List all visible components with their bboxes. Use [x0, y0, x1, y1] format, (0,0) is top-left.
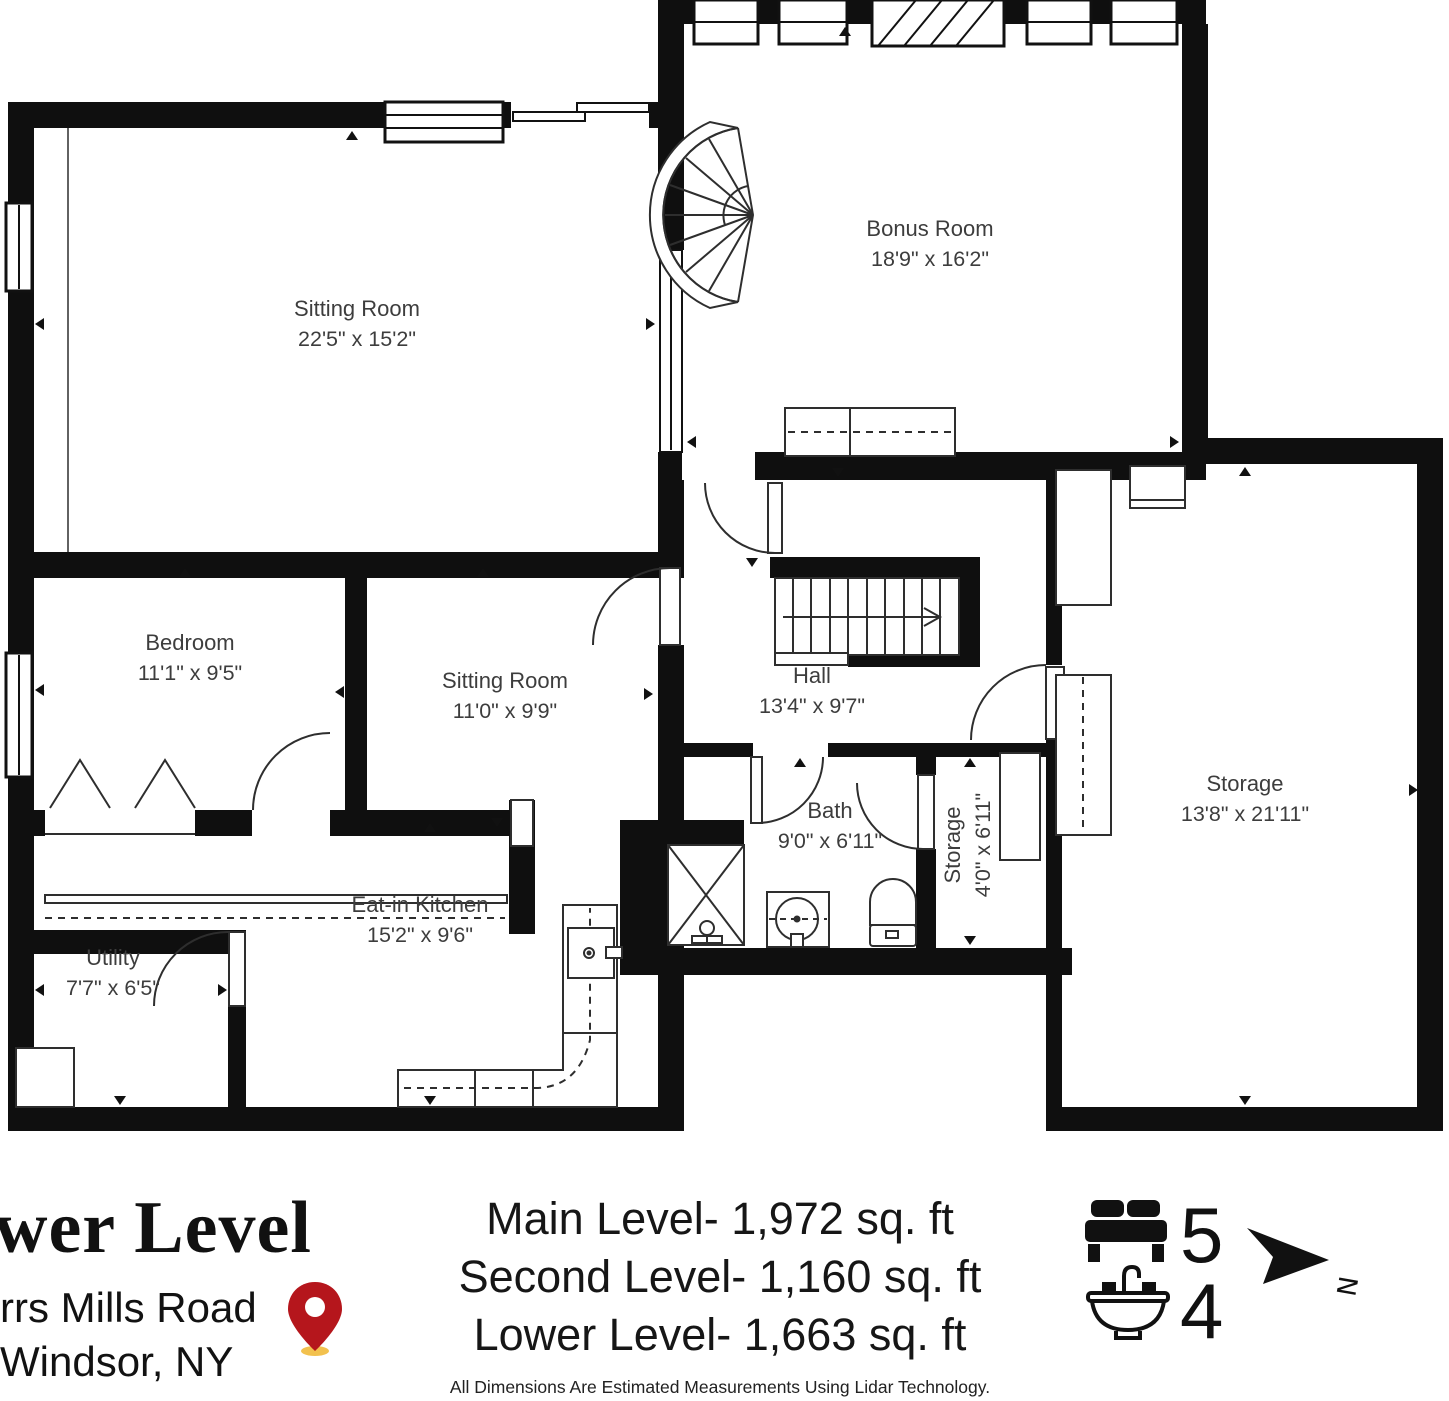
door-panel [511, 800, 533, 846]
level-area-second: Second Level- 1,160 sq. ft [395, 1248, 1045, 1306]
floor-plan: Sitting Room 22'5" x 15'2" Bonus Room 18… [0, 0, 1449, 1140]
door-arc [593, 568, 670, 645]
closet-shelf [45, 895, 507, 918]
door-panel [918, 775, 934, 849]
level-area-lower: Lower Level- 1,663 sq. ft [395, 1306, 1045, 1364]
door-panel [768, 483, 782, 553]
level-area-main: Main Level- 1,972 sq. ft [395, 1190, 1045, 1248]
window-icon [385, 102, 503, 142]
disclaimer-text: All Dimensions Are Estimated Measurement… [380, 1377, 1060, 1398]
sofa-icon [785, 408, 955, 456]
map-pin-icon [286, 1280, 344, 1358]
compass-arrow [1247, 1228, 1329, 1284]
shelf-icon [1000, 753, 1040, 860]
door-arc [971, 665, 1046, 740]
walls-layer [8, 0, 1443, 1131]
stove-icon [568, 928, 622, 978]
door-arc [857, 783, 923, 849]
door-arc [705, 483, 775, 553]
bed-icon [1085, 1200, 1167, 1264]
sink-vanity-icon [767, 892, 829, 947]
door-arc [757, 757, 823, 823]
hatched-opening-icon [872, 0, 1004, 46]
address-line-1: rrs Mills Road [0, 1284, 257, 1332]
address-line-2: Windsor, NY [0, 1338, 233, 1386]
door-panel [660, 568, 680, 645]
baths-count: 4 [1180, 1266, 1223, 1357]
bifold-door-icon [50, 760, 110, 808]
appliance-icon [16, 1048, 74, 1107]
door-panel [229, 932, 245, 1006]
compass-letter: N [1330, 1274, 1363, 1298]
bifold-door-icon [135, 760, 195, 808]
sliding-door-icon [513, 112, 585, 121]
shower-icon [668, 845, 744, 945]
floor-plan-drawing [0, 0, 1449, 1140]
page-title: wer Level [0, 1186, 312, 1271]
sliding-door-icon [577, 103, 649, 112]
storage-furniture [1056, 466, 1185, 835]
sink-icon [1086, 1262, 1170, 1340]
stairs-main [775, 578, 959, 665]
level-areas: Main Level- 1,972 sq. ft Second Level- 1… [395, 1190, 1045, 1364]
door-panel [751, 757, 762, 823]
door-arc [253, 733, 330, 810]
toilet-icon [870, 879, 916, 946]
compass-north-icon: N [1245, 1222, 1370, 1300]
